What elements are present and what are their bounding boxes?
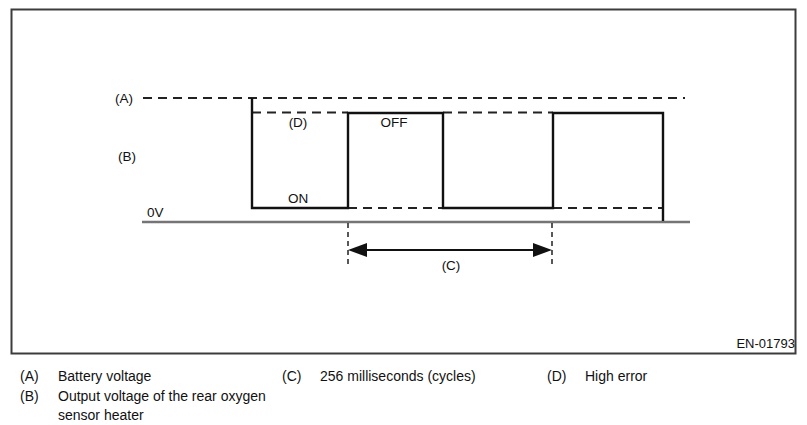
legend-text-a: Battery voltage (58, 367, 151, 386)
legend-text-b-line1: Output voltage of the rear oxygen (58, 387, 266, 406)
label-a: (A) (115, 91, 133, 106)
figure-ref-code: EN-01793 (736, 336, 795, 351)
manual-figure-page: (A) (D) OFF (B) ON 0V (C) EN-01793 (A) B… (0, 0, 807, 425)
legend-text-c: 256 milliseconds (cycles) (320, 367, 476, 386)
on-label: ON (288, 191, 308, 206)
waveform-diagram: (A) (D) OFF (B) ON 0V (C) EN-01793 (0, 0, 807, 360)
legend-key-b: (B) (20, 387, 39, 406)
zero-volt-label: 0V (147, 205, 164, 220)
label-d: (D) (289, 115, 308, 130)
legend-key-a: (A) (20, 367, 39, 386)
arrow-left-head-icon (348, 243, 367, 257)
legend-text-b-line2: sensor heater (58, 406, 144, 425)
legend-key-d: (D) (547, 367, 566, 386)
off-label: OFF (381, 115, 408, 130)
label-b: (B) (118, 149, 136, 164)
figure-legend: (A) Battery voltage (B) Output voltage o… (0, 360, 807, 425)
legend-text-d: High error (585, 367, 647, 386)
arrow-right-head-icon (533, 243, 552, 257)
figure-border (12, 10, 796, 354)
cycle-arrow (348, 243, 552, 257)
heater-waveform-trace (252, 98, 663, 221)
label-c: (C) (442, 258, 461, 273)
legend-key-c: (C) (282, 367, 301, 386)
